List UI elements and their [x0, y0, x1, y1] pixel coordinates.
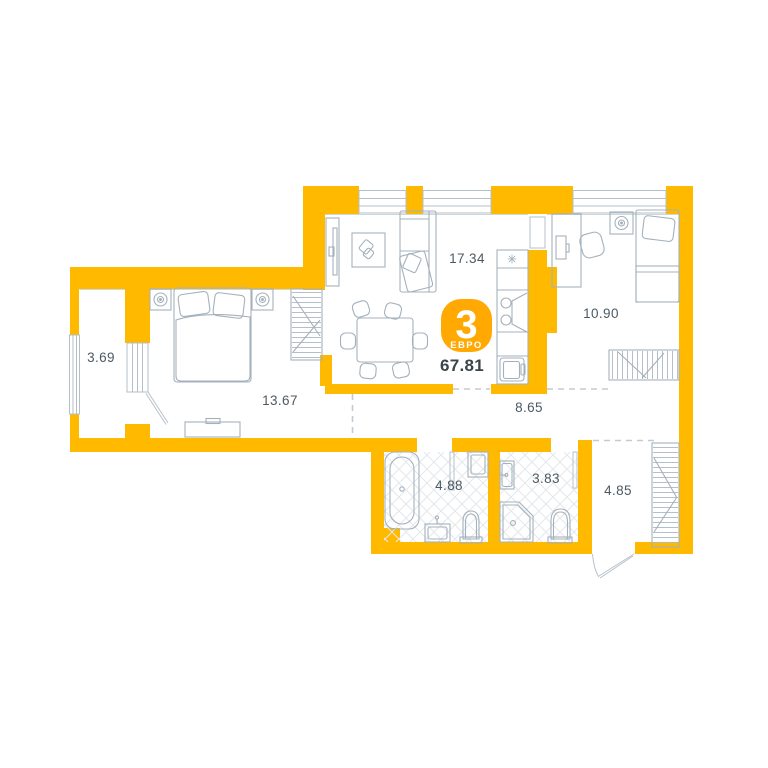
double-bed-icon [174, 288, 251, 382]
vent-icon [508, 255, 517, 264]
chair-icon [383, 302, 402, 320]
kitchen-sink-icon [500, 358, 525, 381]
kitchen-counter-icon [497, 250, 528, 384]
tv-stand-icon [185, 419, 240, 438]
apartment-type-badge: 3 ЕВРО [441, 299, 492, 352]
tv-unit-icon [326, 218, 339, 286]
entrance-door-icon [593, 554, 635, 578]
dining-table-icon [341, 299, 428, 379]
bedroom-1-furniture [150, 288, 322, 437]
room-label-bedroom-2: 10.90 [583, 306, 619, 321]
nightstand-lamp-icon [150, 289, 171, 310]
fridge-niche-icon [530, 217, 545, 248]
chair-icon [392, 361, 411, 379]
window-icon [70, 335, 80, 414]
wardrobe-icon [291, 289, 322, 360]
wardrobe-icon [609, 350, 679, 380]
wardrobe-icon [652, 443, 679, 547]
room-label-corridor: 8.65 [515, 400, 543, 415]
balcony-door-icon [127, 343, 168, 425]
floorplan-svg: 3.69 13.67 17.34 10.90 8.65 4.88 3.83 4.… [0, 0, 768, 768]
chair-icon [341, 333, 356, 349]
floorplan-image: 3.69 13.67 17.34 10.90 8.65 4.88 3.83 4.… [0, 0, 768, 768]
room-label-living: 17.34 [449, 251, 485, 266]
badge-layout-type: ЕВРО [450, 340, 482, 351]
single-bed-icon [636, 210, 679, 302]
bedroom-2-furniture [552, 210, 679, 380]
living-kitchen-furniture [326, 211, 545, 384]
window-icon [359, 191, 406, 214]
chair-icon [359, 363, 376, 379]
window-icon [423, 191, 491, 214]
stove-icon [501, 293, 527, 332]
walls [70, 186, 693, 554]
room-label-bedroom-1: 13.67 [262, 393, 298, 408]
chair-icon [413, 333, 428, 349]
room-label-balcony: 3.69 [87, 350, 115, 365]
armchair-icon [352, 233, 385, 267]
nightstand-lamp-icon [252, 289, 273, 310]
total-area-label: 67.81 [440, 356, 484, 375]
hallway-furniture [593, 443, 680, 578]
corner-sofa-icon [399, 211, 436, 293]
room-label-hallway: 4.85 [604, 483, 632, 498]
nightstand-lamp-icon [610, 212, 633, 234]
zone-boundaries [353, 389, 655, 441]
room-label-bathroom: 4.88 [435, 478, 463, 493]
room-label-toilet: 3.83 [532, 471, 560, 486]
desk-chair-icon [578, 231, 605, 260]
chair-icon [351, 299, 371, 318]
